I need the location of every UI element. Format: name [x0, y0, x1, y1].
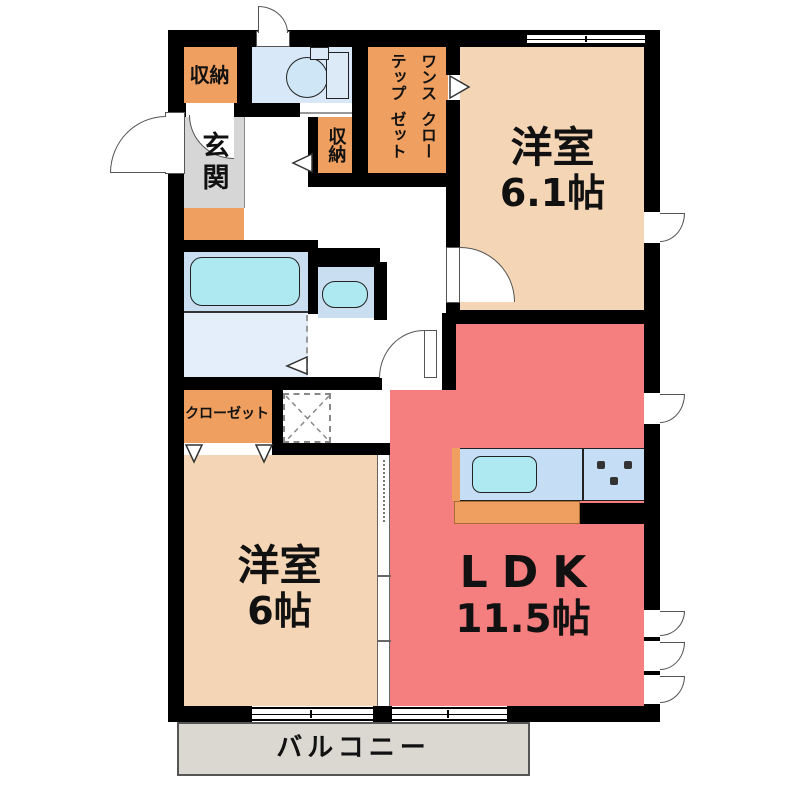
room-ldk-upper	[456, 318, 645, 390]
wall-closet-bottom	[272, 443, 390, 455]
toilet-door-arc	[258, 6, 288, 33]
window-balcony-left	[252, 707, 373, 721]
label-storage-hall: 収納	[318, 117, 352, 173]
label-room-western-6: 洋室 6帖	[182, 518, 377, 658]
wall-under-wic	[308, 173, 460, 187]
ldk-door-leaf	[424, 330, 437, 378]
casement-window	[644, 393, 660, 424]
window-rail	[392, 714, 507, 715]
label-room-western-6-1: 洋室 6.1帖	[460, 95, 645, 245]
wall-wic-west61	[446, 43, 460, 75]
ldk-door-arc	[379, 330, 424, 378]
window-top	[527, 33, 645, 45]
label-storage-top: 収納	[182, 47, 237, 103]
wall-storagehall-left	[308, 117, 318, 175]
wall-basin-top	[308, 248, 380, 267]
bath-divider	[182, 311, 308, 313]
wall-bottom-right	[507, 706, 660, 722]
room-name: 洋室	[510, 124, 594, 172]
washroom	[182, 312, 308, 377]
entrance-door-arc	[110, 116, 166, 173]
partition-rail-dashed	[383, 460, 385, 522]
label-closet: クローゼット	[182, 385, 272, 443]
casement-window	[644, 675, 660, 704]
stove-burner	[624, 461, 632, 469]
label-room-ldk: LDK 11.5帖	[398, 528, 648, 663]
room-size: 11.5帖	[455, 598, 590, 643]
label-wic-left-column: クローゼット	[376, 111, 442, 169]
casement-window-arc	[660, 611, 685, 636]
room-name: 洋室	[237, 542, 321, 590]
stove-burner	[597, 461, 605, 469]
kitchen-base-cabinet	[454, 501, 580, 524]
stove-burner	[610, 477, 618, 485]
wall-ldk-pocket	[442, 313, 456, 390]
room-name: LDK	[446, 548, 601, 599]
label-wic-right-column: ワンステップ	[376, 53, 442, 111]
wall-bottom-left	[168, 706, 252, 722]
accordion-door-strip	[182, 443, 275, 455]
genkan-step	[182, 208, 244, 240]
toilet-bowl	[286, 57, 328, 98]
window-tick	[585, 36, 587, 42]
window-balcony-right	[392, 707, 507, 721]
label-wic: ワンステップ クローゼット	[376, 53, 442, 168]
wall-genkan-bath	[168, 240, 318, 252]
room-size: 6帖	[247, 590, 311, 634]
toilet-tank	[326, 52, 349, 99]
washing-machine-space	[283, 393, 331, 443]
floor-plan: 収納 収納 玄関 ワンステップ クローゼット 洋室 6.1帖 LDK 11.5帖…	[0, 0, 800, 800]
counter-divider	[582, 448, 584, 501]
casement-window-arc	[660, 676, 685, 703]
window-rail	[252, 714, 373, 715]
room-size: 6.1帖	[500, 172, 605, 216]
casement-window-arc	[660, 213, 685, 242]
wall-wic-west61	[446, 100, 460, 247]
casement-window	[644, 212, 660, 243]
casement-window-arc	[660, 642, 685, 670]
kitchen-sink	[472, 456, 537, 493]
washbasin	[322, 281, 368, 308]
washroom-sliding-door	[306, 315, 308, 375]
counter-end-wall	[580, 503, 645, 524]
wall-basin-right	[374, 262, 387, 320]
partition-tick	[378, 640, 391, 642]
wall-right	[644, 30, 660, 212]
label-genkan: 玄関	[182, 118, 244, 208]
bathtub	[190, 257, 300, 306]
toilet-washlet	[310, 47, 329, 60]
label-balcony: バルコニー	[177, 726, 530, 772]
window-tick	[310, 710, 312, 718]
genkan-hall-divider	[244, 115, 245, 208]
wall-closet-right	[272, 385, 283, 443]
casement-window-arc	[660, 394, 685, 423]
toilet-door-track	[300, 112, 352, 114]
west61-door-leaf	[446, 247, 460, 303]
toilet-door-leaf	[256, 31, 290, 47]
window-tick	[447, 710, 449, 718]
opening-toilet-door	[300, 103, 352, 117]
kitchen-side-cabinet	[452, 448, 460, 501]
wall-right	[644, 704, 660, 722]
wall-bottom-pillar	[373, 706, 392, 722]
wall-west61-ldk	[446, 310, 660, 324]
sliding-partition	[377, 455, 390, 706]
partition-tick	[378, 575, 391, 577]
